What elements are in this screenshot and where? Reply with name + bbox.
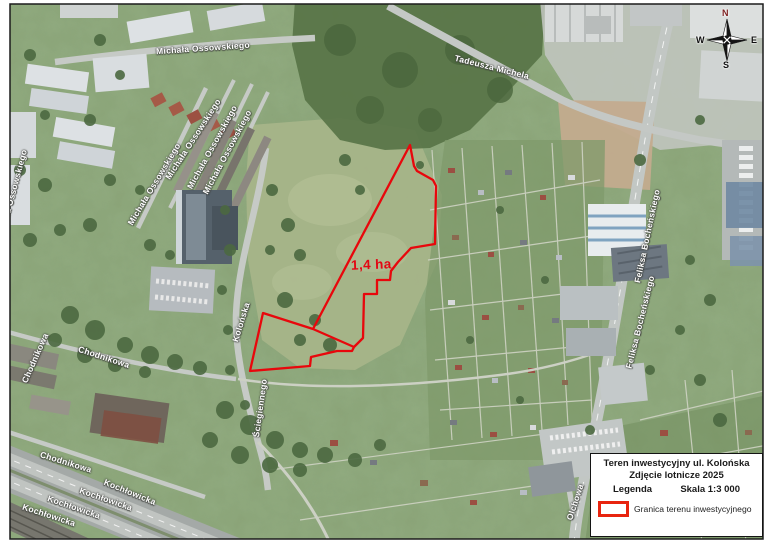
scale-label: Skala 1:3 000 (680, 484, 740, 495)
boundary-swatch (598, 501, 629, 517)
legend-subtitle: Zdjęcie lotnicze 2025 (591, 470, 762, 481)
legend-box: Teren inwestycyjny ul. Kolońska Zdjęcie … (590, 453, 763, 537)
compass-east-label: E (751, 35, 757, 45)
compass-west-label: W (696, 35, 705, 45)
compass-south-label: S (723, 60, 729, 70)
legend-title: Teren inwestycyjny ul. Kolońska (591, 458, 762, 469)
area-label: 1,4 ha (351, 256, 392, 272)
boundary-item-label: Granica terenu inwestycyjnego (634, 504, 752, 514)
compass-north-label: N (722, 8, 729, 18)
legend-label: Legenda (613, 484, 652, 495)
